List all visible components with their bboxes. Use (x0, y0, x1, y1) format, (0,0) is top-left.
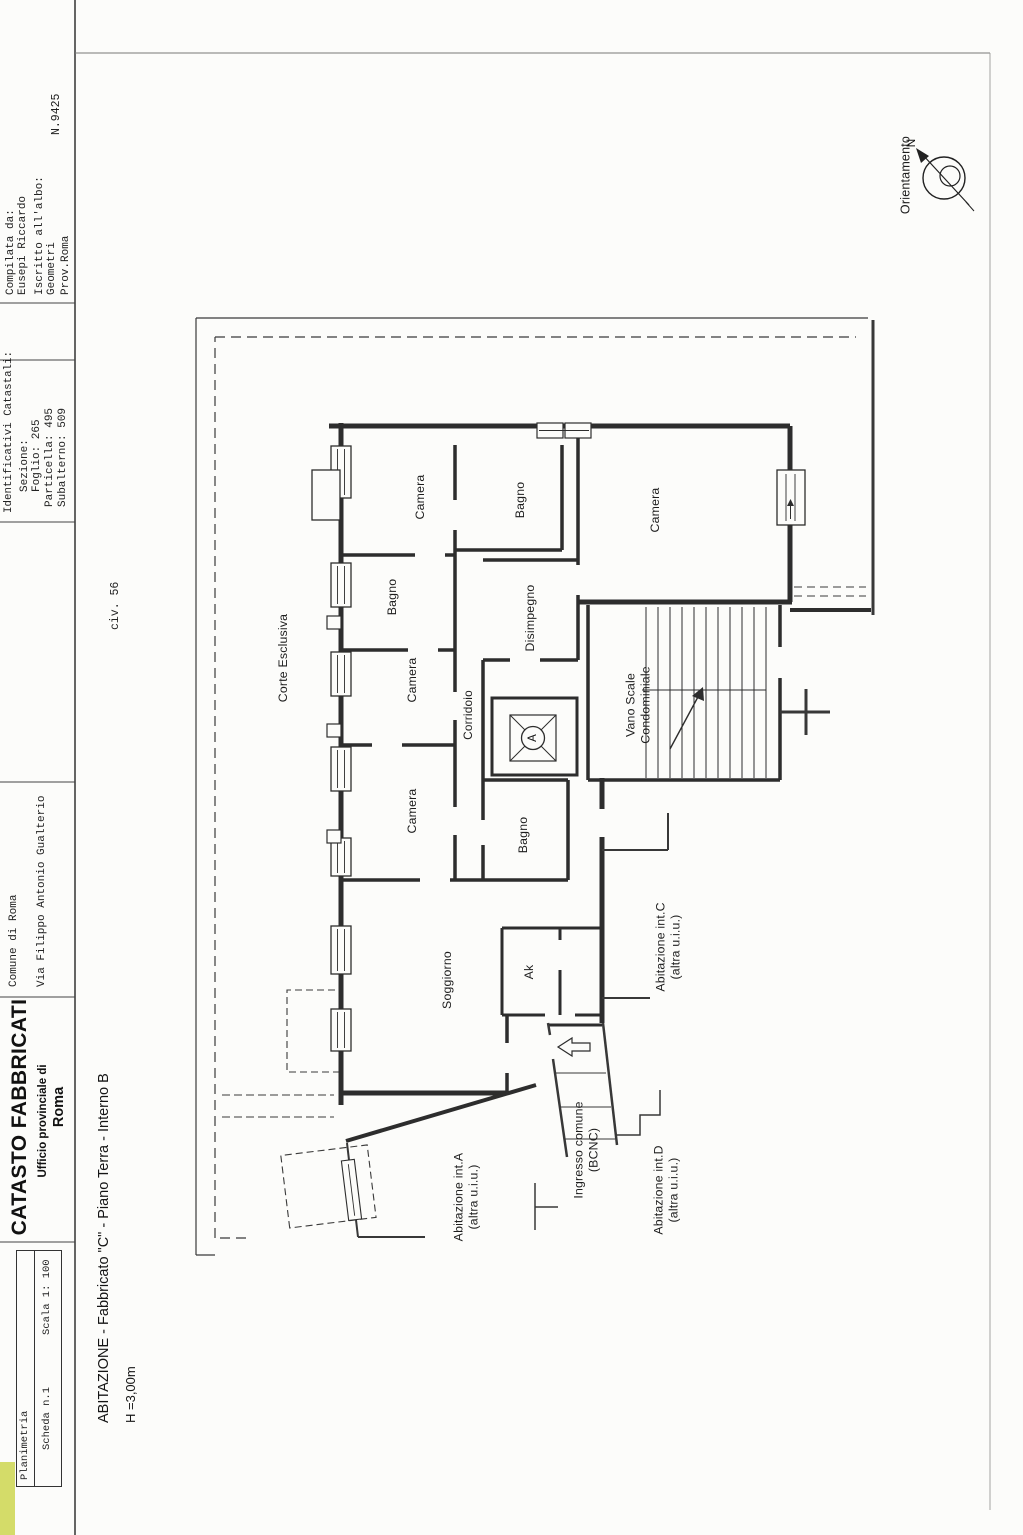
prov-label: Prov.Roma (60, 236, 72, 295)
landscape-document: Planimetria Scheda n.1 Scala 1: 100 CATA… (0, 0, 1023, 1535)
albo-qualifica: Geometri (46, 242, 58, 295)
room-label-disimpegno: Disimpegno (523, 585, 538, 652)
room-label-camera-2: Camera (405, 658, 420, 703)
partition-walls (341, 426, 602, 1093)
compass-icon (916, 148, 974, 211)
page-borders (0, 0, 990, 1535)
room-label-camera-4: Camera (648, 488, 663, 533)
room-label-corridoio: Corridoio (462, 690, 476, 740)
albo-number: N.9425 (51, 94, 64, 135)
stairs (588, 605, 780, 780)
room-label-ingresso-comune: Ingresso comune (BCNC) (572, 1101, 601, 1198)
sezione-label: Sezione: (19, 439, 31, 492)
via-label: Via Filippo Antonio Gualterio (36, 796, 48, 987)
floor-plan-drawing (0, 0, 1023, 1535)
room-label-camera-3: Camera (405, 789, 420, 834)
north-letter: N (904, 139, 918, 148)
civic-number-label: civ. 56 (110, 582, 123, 630)
sheet-caption: ABITAZIONE - Fabbricato "C" - Piano Terr… (96, 1073, 112, 1423)
room-label-corte: Corte Esclusiva (276, 614, 291, 702)
room-label-soggiorno: Soggiorno (440, 951, 455, 1009)
planimetria-box: Planimetria Scheda n.1 Scala 1: 100 (16, 1250, 62, 1487)
room-label-bagno-3: Bagno (516, 817, 531, 854)
corte-boundary (196, 318, 868, 1255)
albo-label: Iscritto all'albo: (34, 176, 46, 295)
entrance-arrow-icon (558, 1038, 590, 1056)
orientamento-label: Orientamento (899, 136, 914, 214)
catasto-city: Roma (51, 1087, 67, 1127)
highlighter-mark (0, 1462, 15, 1535)
room-label-camera-1: Camera (413, 475, 428, 520)
room-label-bagno-1: Bagno (385, 579, 400, 616)
room-label-vano-scale: Vano Scale Condominiale (624, 666, 653, 744)
planimetria-label: Planimetria (19, 1411, 31, 1480)
scala-label: Scala 1: 100 (41, 1259, 53, 1335)
scanned-cadastral-sheet: Planimetria Scheda n.1 Scala 1: 100 CATA… (0, 0, 1023, 1535)
compilata-label: Compilata da: (5, 209, 17, 295)
catasto-subtitle: Ufficio provinciale di (37, 1064, 49, 1177)
outer-walls (329, 423, 871, 1141)
elevator-letter: A (527, 734, 539, 742)
particella-label: Particella: 495 (44, 408, 56, 507)
room-label-ak: Ak (522, 965, 537, 980)
room-label-abitazione-c: Abitazione int.C (altra u.i.u.) (654, 902, 683, 991)
room-label-bagno-2: Bagno (513, 482, 528, 519)
room-label-abitazione-a: Abitazione int.A (altra u.i.u.) (452, 1153, 481, 1242)
catasto-title: CATASTO FABBRICATI (8, 999, 32, 1236)
foglio-label: Foglio: 265 (31, 419, 43, 492)
identificativi-title: Identificativi Catastali: (4, 351, 16, 513)
height-caption: H =3,00m (123, 1366, 138, 1423)
subalterno-label: Subalterno: 509 (57, 408, 69, 507)
room-label-abitazione-d: Abitazione int.D (altra u.i.u.) (652, 1145, 681, 1234)
comune-label: Comune di Roma (8, 895, 20, 987)
scheda-label: Scheda n.1 (41, 1387, 53, 1450)
compilata-name: Eusepi Riccardo (17, 196, 29, 295)
